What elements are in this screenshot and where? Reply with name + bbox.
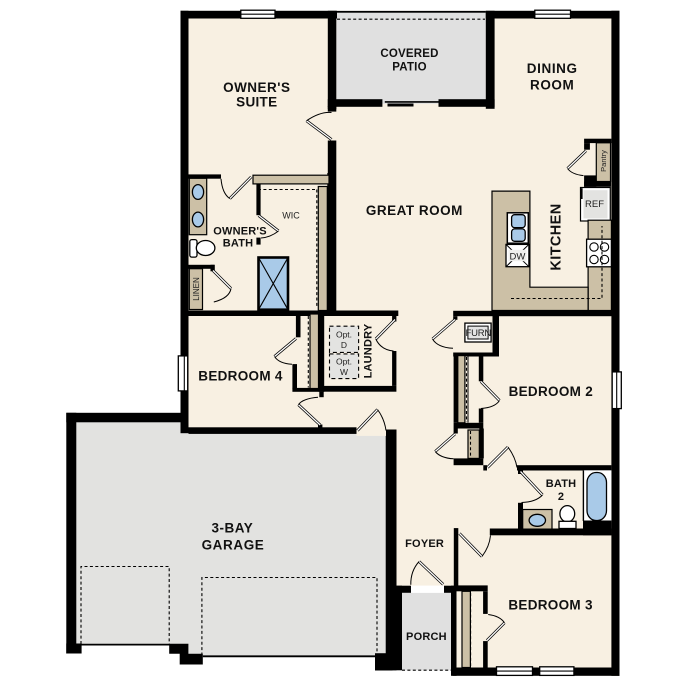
svg-text:SUITE: SUITE	[236, 95, 277, 110]
svg-text:PORCH: PORCH	[406, 631, 447, 643]
svg-text:DW: DW	[509, 251, 525, 262]
svg-text:LAUNDRY: LAUNDRY	[363, 323, 375, 378]
svg-text:BATH: BATH	[223, 238, 254, 250]
svg-text:GARAGE: GARAGE	[202, 537, 265, 552]
svg-text:D: D	[341, 340, 347, 350]
svg-text:BEDROOM 2: BEDROOM 2	[509, 384, 593, 399]
svg-text:OWNER'S: OWNER'S	[223, 80, 290, 95]
svg-text:2: 2	[558, 491, 564, 503]
svg-text:BATH: BATH	[546, 478, 577, 490]
svg-text:W: W	[340, 367, 348, 377]
svg-text:GREAT ROOM: GREAT ROOM	[366, 203, 463, 218]
svg-text:LINEN: LINEN	[192, 277, 201, 301]
svg-text:Opt.: Opt.	[336, 357, 352, 367]
svg-text:REF: REF	[585, 199, 604, 210]
svg-text:BEDROOM 4: BEDROOM 4	[198, 368, 283, 383]
svg-text:DINING: DINING	[527, 61, 578, 76]
svg-text:OWNER'S: OWNER'S	[213, 226, 267, 238]
svg-text:BEDROOM 3: BEDROOM 3	[508, 598, 593, 613]
svg-text:KITCHEN: KITCHEN	[548, 203, 564, 270]
svg-text:COVERED: COVERED	[380, 48, 438, 60]
svg-text:PATIO: PATIO	[392, 62, 426, 74]
svg-text:Opt.: Opt.	[336, 330, 352, 340]
svg-text:WIC: WIC	[282, 210, 300, 220]
svg-text:FURN: FURN	[466, 328, 492, 339]
svg-text:FOYER: FOYER	[405, 538, 444, 550]
svg-text:3-BAY: 3-BAY	[212, 521, 254, 536]
svg-text:ROOM: ROOM	[530, 78, 574, 93]
svg-text:Pantry: Pantry	[599, 150, 608, 172]
